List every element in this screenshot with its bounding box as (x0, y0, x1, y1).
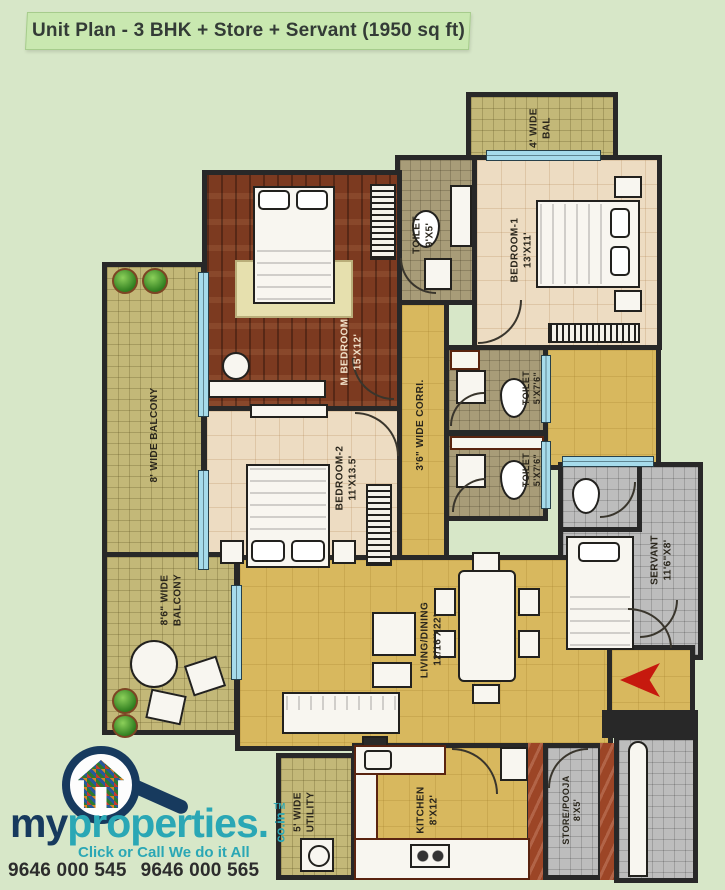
window-toilet-2 (541, 441, 551, 509)
pillow (610, 208, 630, 238)
contact-phones: 9646 000 5459646 000 565 (8, 860, 273, 882)
bed-sheet-lines (540, 204, 604, 284)
label-toilet-1: TOILET 5'X7'6" (521, 371, 544, 405)
washing-machine (300, 838, 334, 872)
vanity-toilet-top (450, 185, 472, 247)
hob-burners (410, 844, 450, 868)
window-balcony-top (486, 150, 601, 161)
brand-tagline: Click or Call We do it All (78, 844, 250, 861)
label-kitchen: KITCHEN 8'X12' (416, 786, 441, 833)
vanity-toilet-2 (450, 436, 544, 450)
pillow (296, 190, 328, 210)
bed-sheet-lines (570, 590, 630, 646)
dining-chair (472, 552, 500, 572)
dresser-table (208, 380, 326, 398)
label-servant: SERVANT 11'6"X8' (650, 535, 675, 585)
nightstand (614, 290, 642, 312)
fridge (500, 747, 528, 781)
window-servant-top (562, 456, 654, 467)
window-mbed-balcony (198, 272, 209, 417)
pillow (610, 246, 630, 276)
floor-plan-canvas: Unit Plan - 3 BHK + Store + Servant (195… (0, 0, 725, 890)
stair-strip (628, 741, 648, 877)
room-entry (607, 645, 695, 717)
myproperties-logo: myproperties. TM co.in Click or Call We … (0, 728, 290, 890)
dining-chair (472, 684, 500, 704)
kitchen-counter-left (354, 773, 378, 843)
armchair (372, 612, 416, 656)
bed-sheet-lines (250, 468, 326, 530)
brand-domain: co.in (273, 812, 288, 842)
label-balcony-top: 4' WIDE BAL (529, 108, 554, 148)
kitchen-sink (364, 750, 392, 770)
dining-chair (518, 630, 540, 658)
label-toilet-top: TOILET 9'X5' (412, 216, 437, 254)
brand-properties: properties (67, 800, 258, 846)
pillow (291, 540, 325, 562)
side-table (372, 662, 412, 688)
phone-number-2: 9646 000 565 (141, 860, 260, 881)
label-store-pooja: STORE/POOJA 8'X5' (561, 775, 584, 844)
window-bed2-balcony (198, 470, 209, 570)
label-master-bedroom: M BEDROOM 15'X12' (340, 319, 365, 386)
nightstand (614, 176, 642, 198)
sofa-back-cushions (286, 696, 396, 710)
tv-unit-bedroom2 (250, 404, 328, 418)
vanity-toilet-1 (450, 350, 480, 370)
pillow (578, 542, 620, 562)
phone-number-1: 9646 000 545 (8, 860, 127, 881)
title-banner: Unit Plan - 3 BHK + Store + Servant (195… (25, 12, 471, 50)
brand-wordmark: myproperties. TM co.in (10, 800, 269, 847)
plant (112, 688, 138, 714)
wall-patch-entry (602, 710, 698, 738)
wardrobe-bedroom1 (548, 323, 640, 343)
label-living-dining: LIVING/DINING 12/16'X22' (420, 602, 445, 678)
room-stair-lobby (614, 735, 698, 883)
label-corridor: 3'6" WIDE CORRI. (415, 379, 428, 470)
trademark-symbol: TM (274, 802, 286, 811)
wardrobe-master (370, 184, 396, 260)
brand-dot: . (258, 800, 269, 846)
nightstand (332, 540, 356, 564)
label-bedroom1: BEDROOM-1 13'X11' (510, 218, 535, 283)
bed-sheet-lines (257, 240, 331, 300)
wardrobe-bedroom2 (366, 484, 392, 566)
label-bedroom2: BEDROOM-2 11'X13.5' (335, 446, 360, 511)
dining-table (458, 570, 516, 682)
label-toilet-2: TOILET 5'X7'6" (521, 453, 544, 487)
dining-chair (518, 588, 540, 616)
plant (142, 268, 168, 294)
washing-machine-drum (308, 845, 330, 867)
dresser-stool (222, 352, 250, 380)
nightstand (220, 540, 244, 564)
plan-title: Unit Plan - 3 BHK + Store + Servant (195… (32, 20, 465, 42)
pillow (258, 190, 290, 210)
label-balcony-left: 8' WIDE BALCONY (149, 387, 162, 482)
balcony-round-table (130, 640, 178, 688)
window-toilet-1 (541, 355, 551, 423)
label-utility: 5' WIDE UTILITY (293, 792, 318, 833)
pillow (251, 540, 285, 562)
brand-my: my (10, 800, 67, 846)
plant (112, 268, 138, 294)
window-living-balcony (231, 585, 242, 680)
label-balcony-lower: 8'6" WIDE BALCONY (160, 574, 185, 626)
room-lobby-right (543, 345, 661, 470)
